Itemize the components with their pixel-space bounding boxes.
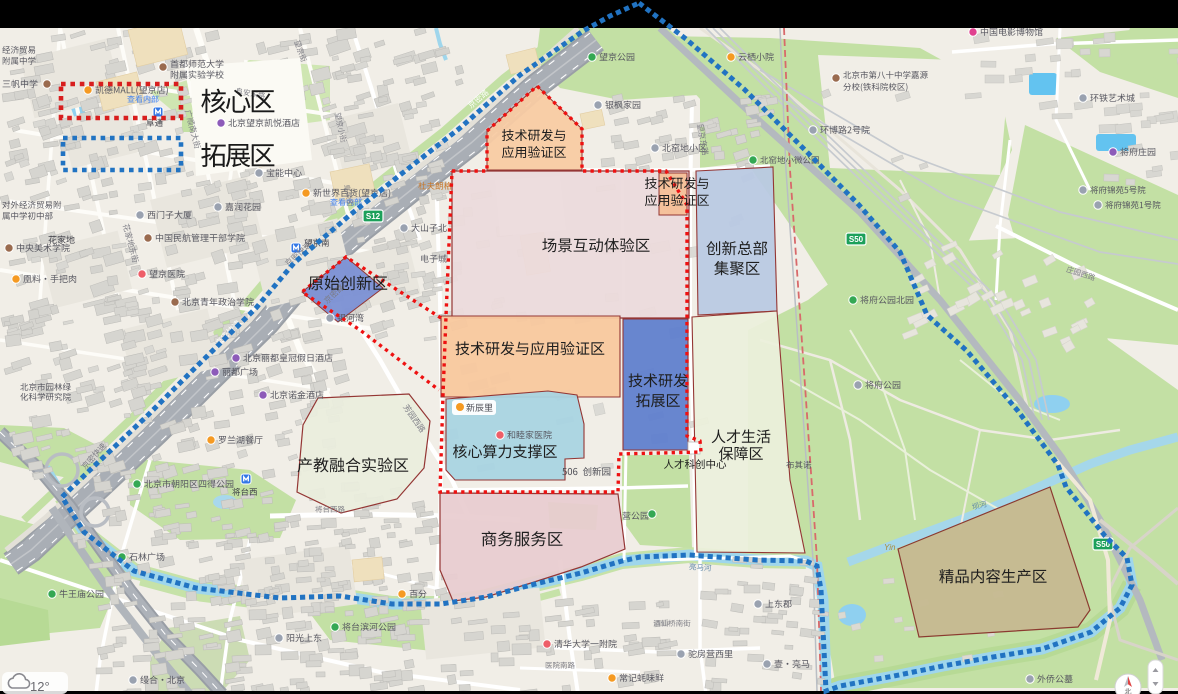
svg-text:S12: S12 bbox=[366, 212, 381, 221]
svg-text:12°: 12° bbox=[30, 679, 50, 694]
svg-text:S50: S50 bbox=[849, 235, 864, 244]
svg-text:Yin: Yin bbox=[884, 543, 896, 552]
